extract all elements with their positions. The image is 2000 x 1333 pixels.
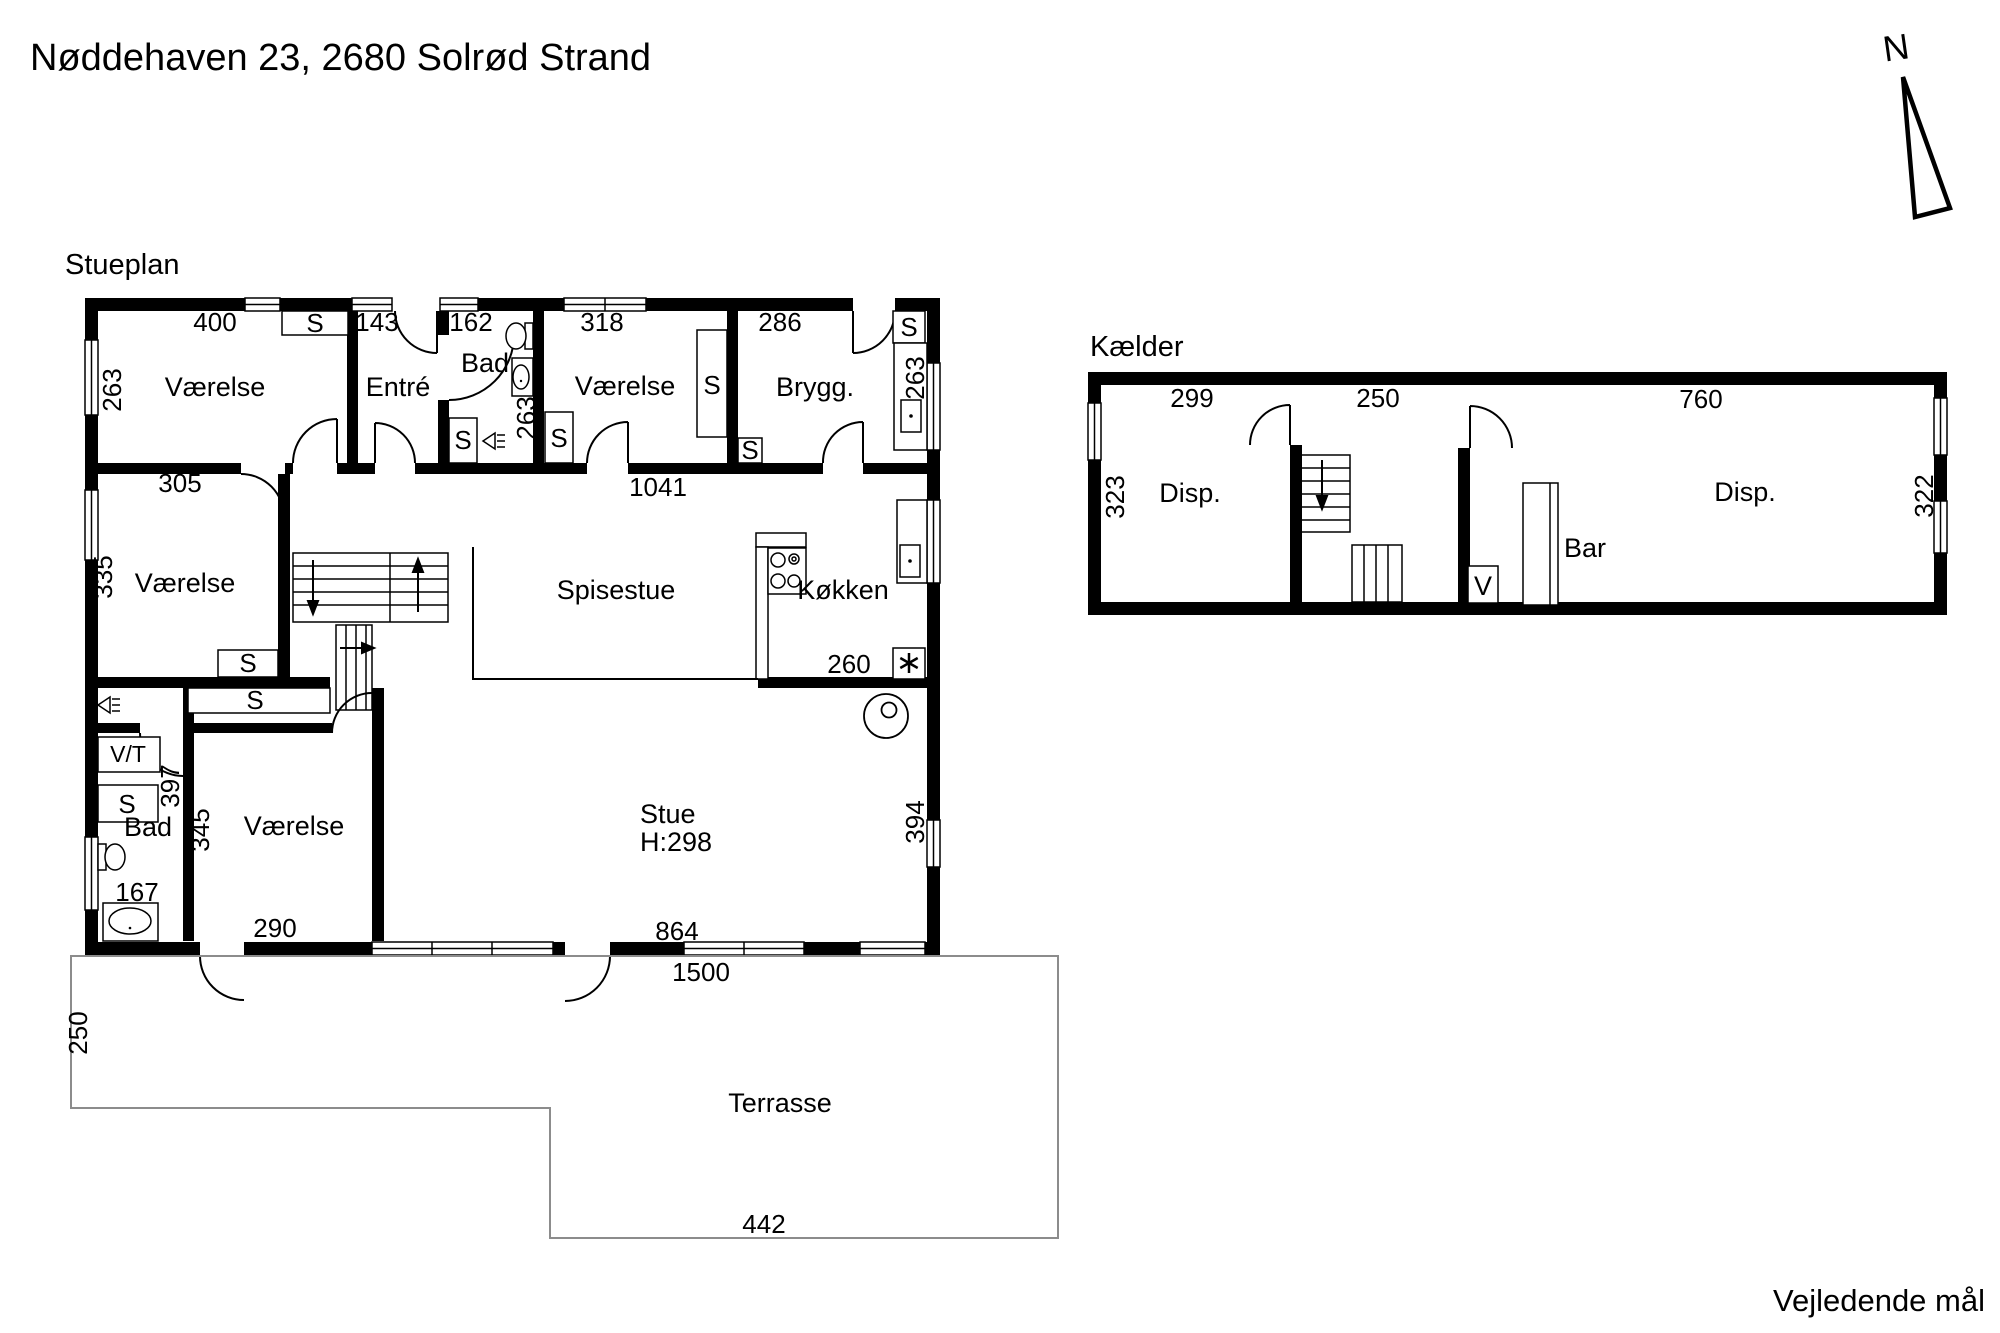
sink-symbol-entre-icon: [483, 433, 505, 449]
dim-760: 760: [1679, 384, 1722, 414]
terrace-door-left-arc: [200, 956, 244, 1000]
floorplan-drawing: N Nøddehaven 23, 2680 Solrød Strand Stue…: [0, 0, 2000, 1333]
room-stue: Stue: [640, 799, 696, 829]
north-arrow-icon: N: [1880, 25, 1950, 217]
dim-345: 345: [185, 808, 215, 851]
dim-394: 394: [900, 800, 930, 843]
bad-top-toilet-icon: [506, 323, 533, 349]
dim-442: 442: [742, 1209, 785, 1239]
vaerelse318-door-arc: [587, 422, 628, 463]
closet-s-brygg-right: S: [900, 312, 917, 342]
brygg-door-arc: [823, 422, 863, 463]
dim-318: 318: [580, 307, 623, 337]
dim-335: 335: [88, 555, 118, 598]
dim-167: 167: [115, 877, 158, 907]
dim-299: 299: [1170, 383, 1213, 413]
room-disp-right: Disp.: [1714, 477, 1776, 507]
dim-k250: 250: [1356, 383, 1399, 413]
closet-s-badcol: S: [118, 789, 135, 819]
closet-s-318-left: S: [550, 423, 567, 453]
room-terrasse: Terrasse: [728, 1088, 832, 1118]
dim-260: 260: [827, 649, 870, 679]
room-bar: Bar: [1564, 533, 1606, 563]
room-brygg: Brygg.: [776, 372, 854, 402]
dim-162: 162: [449, 307, 492, 337]
spisestue-divider-line: [473, 547, 758, 679]
dim-305: 305: [158, 468, 201, 498]
dim-263-left: 263: [97, 368, 127, 411]
closet-s-entre: S: [454, 425, 471, 455]
dim-322: 322: [1909, 474, 1939, 517]
vaerelse400-door-arc: [293, 419, 337, 463]
washer-dryer-label: V/T: [110, 741, 146, 767]
closet-s-400: S: [306, 308, 323, 338]
footnote: Vejledende mål: [1773, 1283, 1985, 1318]
closet-s-335: S: [239, 648, 256, 678]
dim-864: 864: [655, 916, 698, 946]
north-label: N: [1880, 25, 1911, 69]
dim-143: 143: [355, 307, 398, 337]
kaelder-door-left-arc: [1250, 405, 1290, 445]
dim-400: 400: [193, 307, 236, 337]
dim-263-mid: 263: [511, 396, 541, 439]
entrance-door-arc: [395, 311, 437, 353]
bar-counter: [1523, 483, 1558, 605]
dim-250: 250: [63, 1011, 93, 1054]
bad-bottom-toilet-icon: [98, 844, 125, 870]
floorplan-page: N Nøddehaven 23, 2680 Solrød Strand Stue…: [0, 0, 2000, 1333]
room-vent: V: [1474, 571, 1492, 601]
vaerelse335-door-arc: [241, 474, 284, 517]
room-stue-height: H:298: [640, 827, 712, 857]
room-entre: Entré: [366, 372, 431, 402]
entre-hall-door-arc: [375, 423, 415, 463]
dim-286: 286: [758, 307, 801, 337]
kaelder-stairs: [1292, 455, 1402, 602]
kaelder-title: Kælder: [1090, 331, 1184, 363]
bathtub-icon: [103, 903, 158, 941]
dim-1500: 1500: [672, 957, 730, 987]
dim-263-right: 263: [900, 356, 930, 399]
closet-s-318-right: S: [703, 370, 720, 400]
room-koekken: Køkken: [797, 575, 889, 605]
room-vaerelse-335: Værelse: [135, 568, 236, 598]
room-disp-left: Disp.: [1159, 478, 1221, 508]
dim-290: 290: [253, 913, 296, 943]
dim-323: 323: [1100, 475, 1130, 518]
stueplan-title: Stueplan: [65, 249, 180, 281]
page-title: Nøddehaven 23, 2680 Solrød Strand: [30, 37, 651, 79]
room-spisestue: Spisestue: [557, 575, 676, 605]
closet-s-hall: S: [246, 685, 263, 715]
room-vaerelse-318: Værelse: [575, 371, 676, 401]
kaelder-windows: [1088, 398, 1947, 553]
wood-stove-icon: [864, 694, 908, 738]
kaelder-door-right-arc: [1470, 406, 1512, 448]
room-bad-top: Bad: [461, 348, 509, 378]
backdoor-arc: [853, 311, 895, 353]
closet-s-brygg-small: S: [741, 435, 758, 465]
dim-1041: 1041: [629, 472, 687, 502]
terrace-outline: [71, 956, 1058, 1238]
terrace-door-right-arc: [565, 956, 610, 1001]
dim-397: 397: [155, 764, 185, 807]
bad-top-sink-icon: [512, 358, 533, 396]
room-vaerelse-400: Værelse: [165, 372, 266, 402]
sink-symbol-hall-icon: [98, 697, 120, 713]
room-vaerelse-290: Værelse: [244, 811, 345, 841]
